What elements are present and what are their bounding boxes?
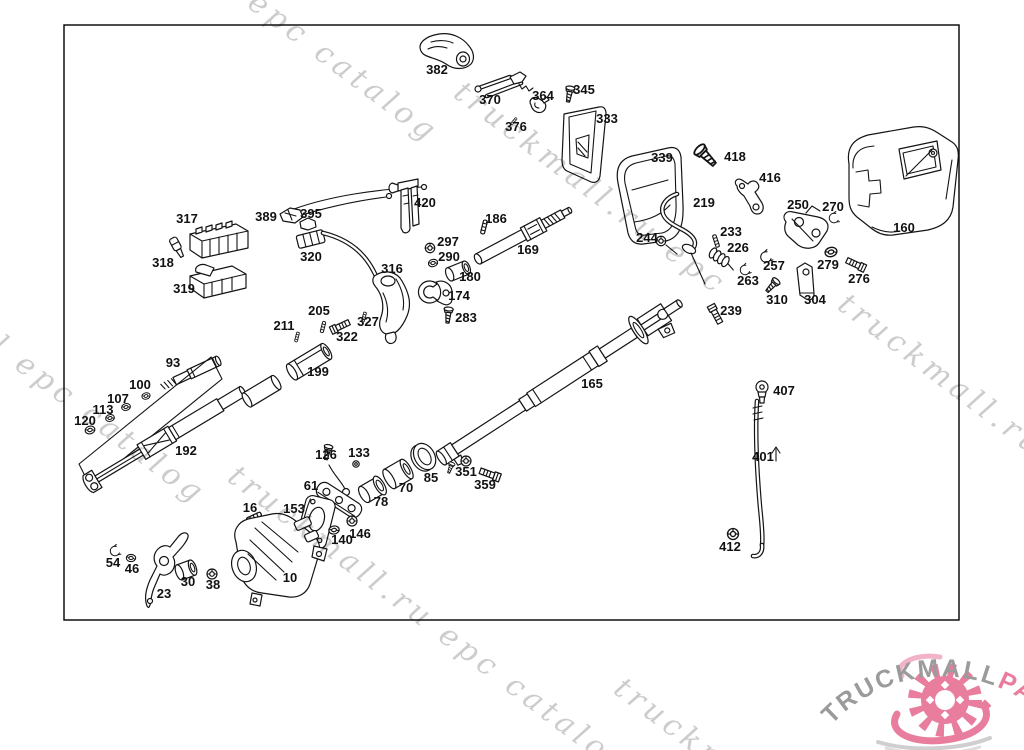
part-label-416: 416 (759, 170, 781, 185)
part-label-276: 276 (848, 271, 870, 286)
part-label-327: 327 (357, 314, 379, 329)
part-146-drawing (347, 516, 357, 526)
part-label-401: 401 (752, 449, 774, 464)
part-label-359: 359 (474, 477, 496, 492)
part-label-283: 283 (455, 310, 477, 325)
part-label-263: 263 (737, 273, 759, 288)
part-276-drawing (845, 257, 867, 273)
part-297-drawing (425, 243, 435, 253)
part-label-322: 322 (336, 329, 358, 344)
part-label-320: 320 (300, 249, 322, 264)
parts-catalog-page: epc catalogtruckmall.ru epcl epc catalog… (0, 0, 1024, 750)
part-100-drawing (141, 392, 151, 400)
part-label-199: 199 (307, 364, 329, 379)
watermark-text-0: epc catalog (241, 0, 446, 151)
part-211-drawing (294, 332, 299, 342)
part-label-23: 23 (157, 586, 171, 601)
part-label-180: 180 (459, 269, 481, 284)
part-133-drawing (353, 461, 359, 467)
part-label-244: 244 (636, 230, 658, 245)
part-label-345: 345 (573, 82, 595, 97)
part-label-420: 420 (414, 195, 436, 210)
part-label-16: 16 (243, 500, 257, 515)
part-label-219: 219 (693, 195, 715, 210)
part-label-78: 78 (374, 494, 388, 509)
exploded-diagram: epc catalogtruckmall.ru epcl epc catalog… (0, 0, 1024, 750)
part-label-376: 376 (505, 119, 527, 134)
part-label-120: 120 (74, 413, 96, 428)
part-label-304: 304 (804, 292, 826, 307)
part-290-drawing (428, 258, 439, 267)
part-label-169: 169 (517, 242, 539, 257)
part-label-319: 319 (173, 281, 195, 296)
part-label-30: 30 (181, 574, 195, 589)
part-label-100: 100 (129, 377, 151, 392)
part-label-70: 70 (399, 480, 413, 495)
part-label-364: 364 (532, 88, 554, 103)
part-label-54: 54 (106, 555, 121, 570)
part-label-85: 85 (424, 470, 438, 485)
part-label-333: 333 (596, 111, 618, 126)
part-label-407: 407 (773, 383, 795, 398)
part-label-389: 389 (255, 209, 277, 224)
part-233-drawing (712, 234, 719, 247)
part-label-211: 211 (274, 318, 295, 333)
part-label-192: 192 (175, 443, 197, 458)
part-label-339: 339 (651, 150, 673, 165)
shaft-sleeve-drawing (240, 374, 283, 408)
part-283-drawing (443, 307, 453, 324)
part-205-drawing (320, 321, 326, 333)
part-412-drawing (728, 529, 739, 540)
part-label-186: 186 (485, 211, 507, 226)
part-418-drawing (693, 143, 720, 170)
part-label-133: 133 (348, 445, 370, 460)
part-label-239: 239 (720, 303, 742, 318)
part-label-205: 205 (308, 303, 330, 318)
part-label-165: 165 (581, 376, 603, 391)
part-label-233: 233 (720, 224, 742, 239)
part-316-drawing (373, 272, 410, 344)
part-label-46: 46 (125, 561, 139, 576)
watermark-text-5: truckmall (607, 670, 781, 750)
part-label-395: 395 (300, 206, 322, 221)
part-label-126: 126 (315, 447, 337, 462)
part-labels: 3823703643453763333394184162192502701602… (74, 62, 915, 601)
part-label-316: 316 (381, 261, 403, 276)
part-label-61: 61 (304, 478, 318, 493)
part-label-153: 153 (283, 501, 305, 516)
part-label-257: 257 (763, 258, 785, 273)
part-label-310: 310 (766, 292, 788, 307)
part-401-drawing (753, 401, 780, 556)
part-label-318: 318 (152, 255, 174, 270)
part-174-drawing (418, 281, 452, 305)
part-label-317: 317 (176, 211, 198, 226)
part-319-drawing (190, 264, 246, 298)
part-label-10: 10 (283, 570, 297, 585)
part-label-297: 297 (437, 234, 459, 249)
part-label-38: 38 (206, 577, 220, 592)
part-label-270: 270 (822, 199, 844, 214)
part-label-93: 93 (166, 355, 180, 370)
part-160-drawing (848, 127, 958, 236)
part-label-160: 160 (893, 220, 915, 235)
watermark-layer: epc catalogtruckmall.ru epcl epc catalog… (0, 0, 1024, 750)
part-label-412: 412 (719, 539, 741, 554)
watermark-text-4: truckmall.ru epc (831, 286, 1024, 514)
part-label-226: 226 (727, 240, 749, 255)
part-label-279: 279 (817, 257, 839, 272)
part-label-290: 290 (438, 249, 460, 264)
part-label-370: 370 (479, 92, 501, 107)
part-label-146: 146 (349, 526, 371, 541)
part-label-418: 418 (724, 149, 746, 164)
part-label-250: 250 (787, 197, 809, 212)
part-label-174: 174 (448, 288, 470, 303)
part-317-drawing (190, 221, 248, 258)
part-label-382: 382 (426, 62, 448, 77)
